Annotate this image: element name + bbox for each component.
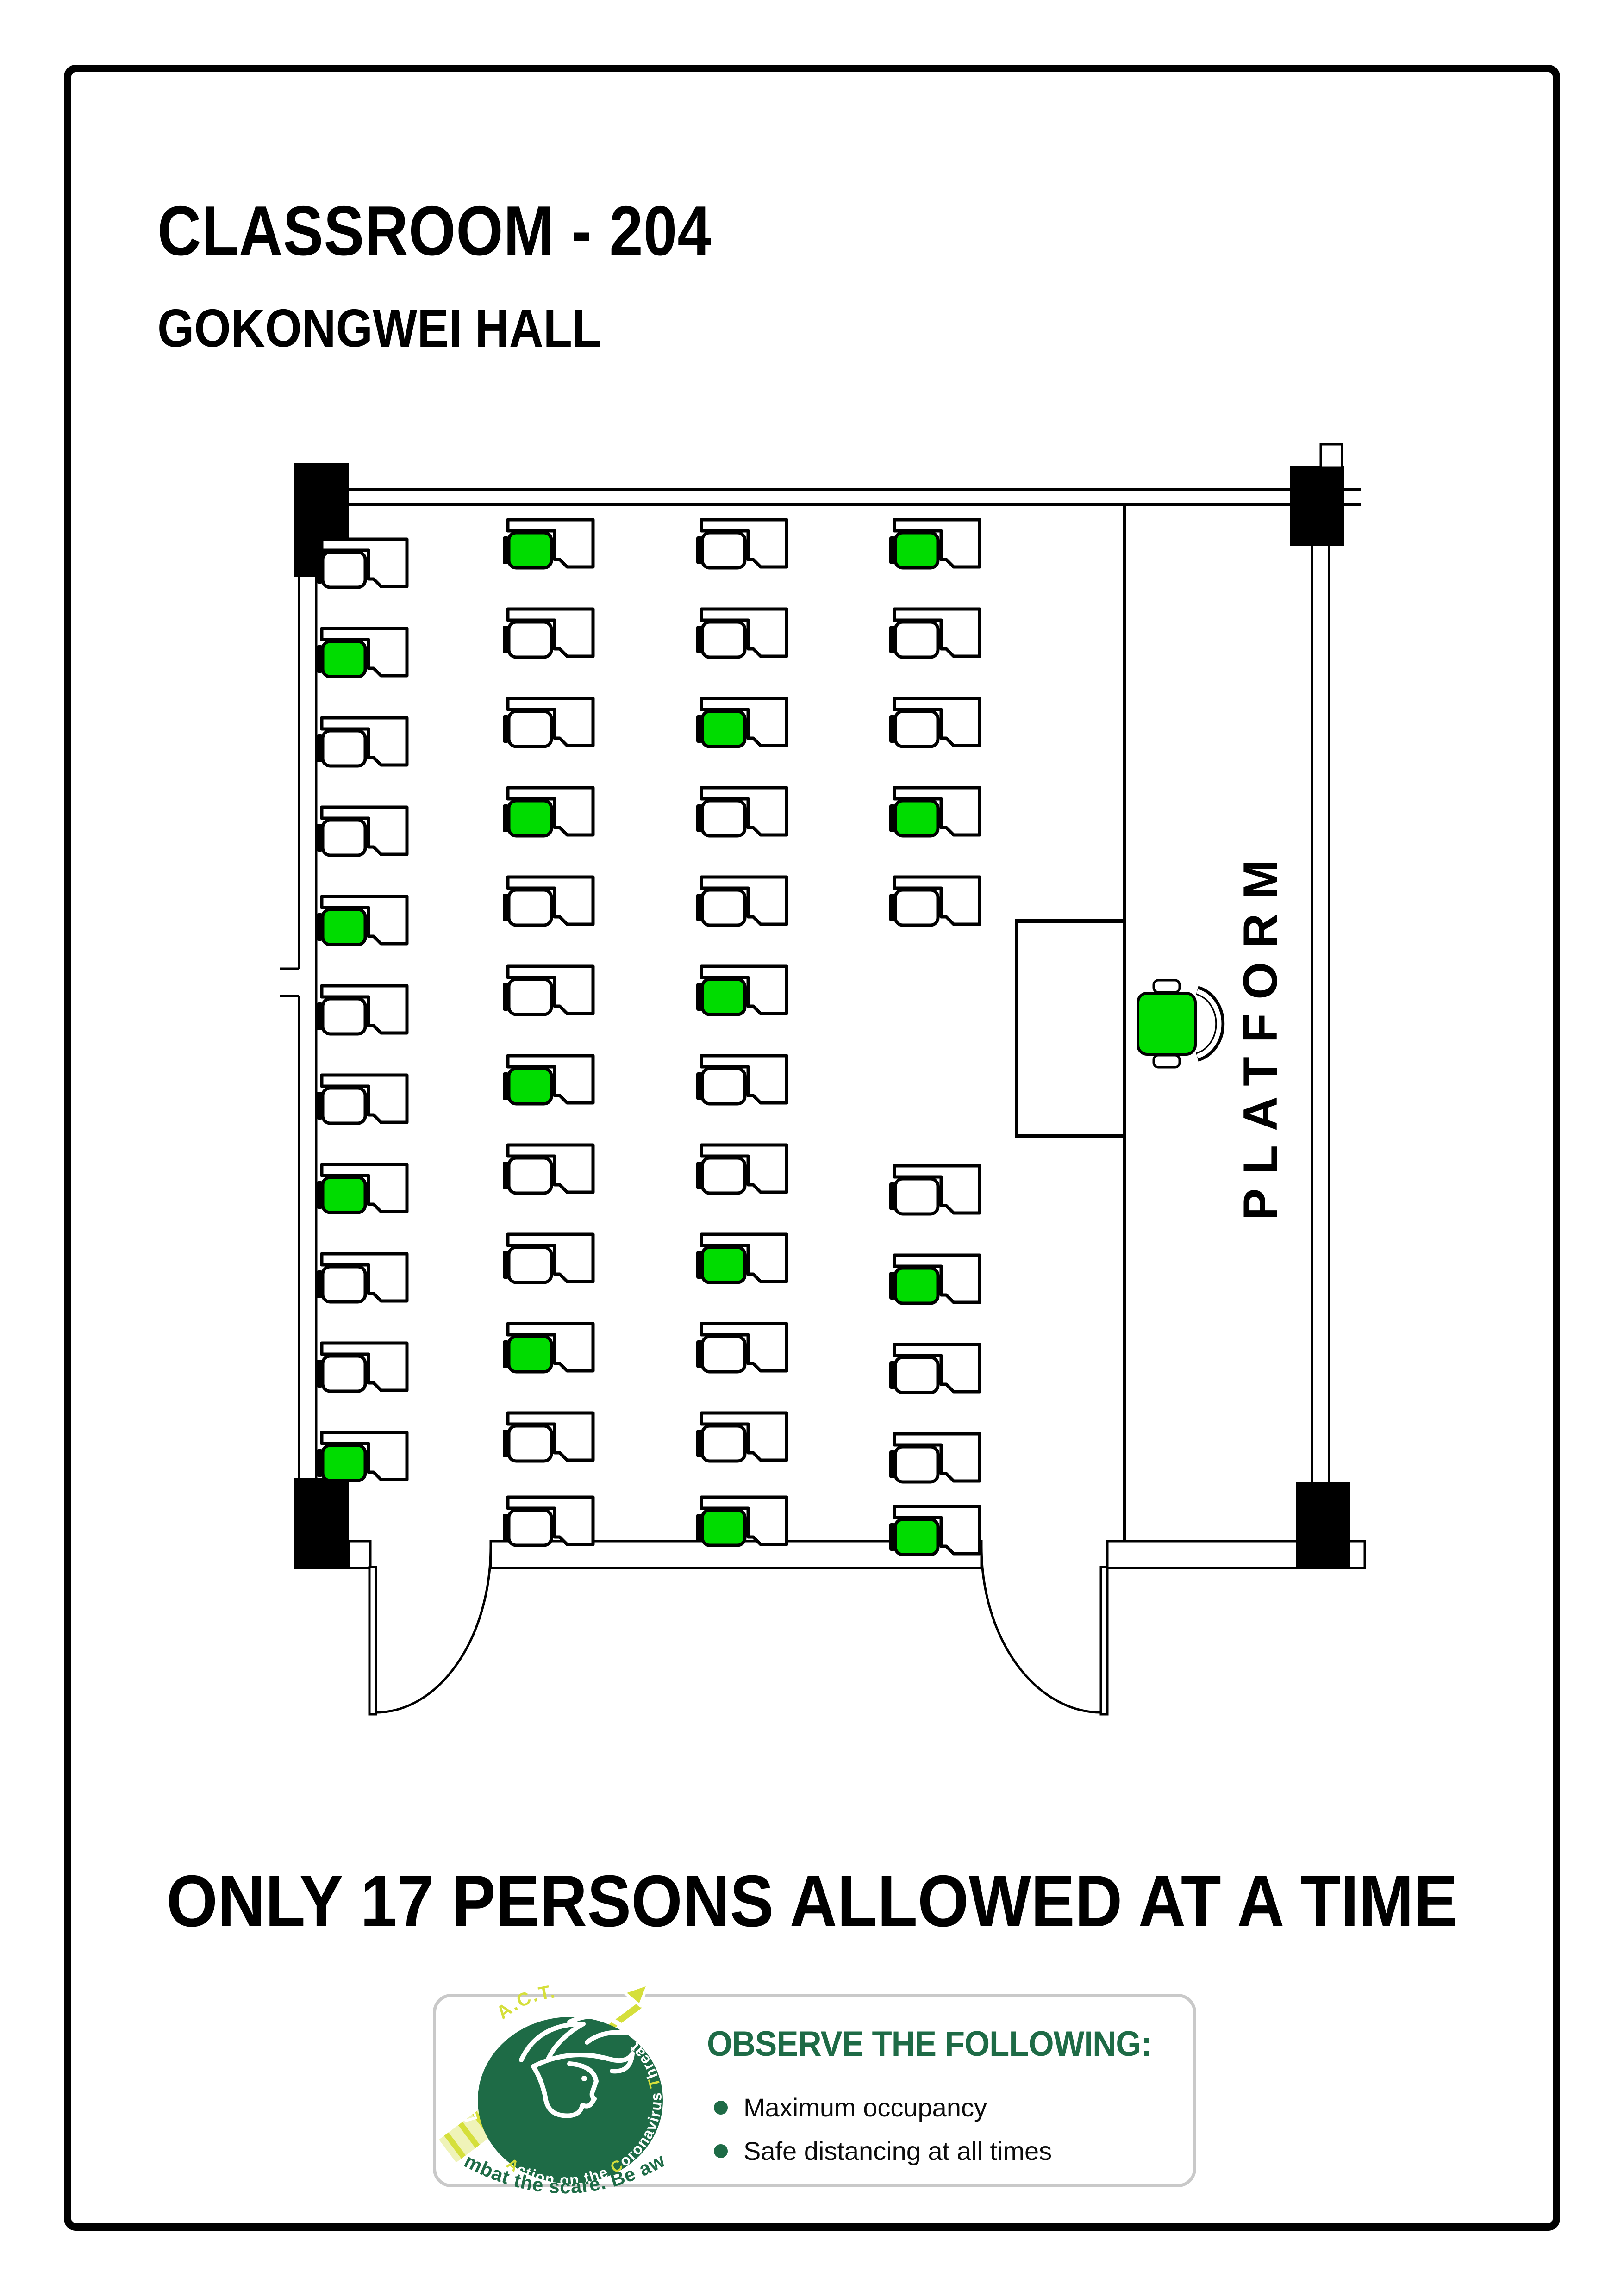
desk-col-a-4-occupied bbox=[503, 788, 593, 836]
desk-col-a-1-occupied bbox=[503, 520, 593, 568]
desk-wall-column-3-empty bbox=[317, 718, 407, 766]
desk-col-a-5-empty bbox=[503, 877, 593, 925]
bullet-item: Safe distancing at all times bbox=[714, 2136, 1052, 2166]
desk-col-a-9-empty bbox=[503, 1234, 593, 1282]
desk-col-c-5-empty bbox=[889, 877, 980, 925]
bullet-item: Maximum occupancy bbox=[714, 2092, 987, 2122]
desk-col-a-7-occupied bbox=[503, 1056, 593, 1104]
desk-wall-column-2-occupied bbox=[317, 628, 407, 677]
left-wall bbox=[280, 575, 316, 1479]
door-left bbox=[369, 1547, 491, 1714]
page-subtitle: GOKONGWEI HALL bbox=[157, 297, 601, 359]
desk-col-b-7-empty bbox=[696, 1056, 787, 1104]
act-badge: Lasallians A.C.T. Action on the Coronavi… bbox=[433, 1994, 1196, 2187]
pillar-bottom-left bbox=[294, 1478, 349, 1569]
desk-col-c-7-occupied bbox=[889, 1255, 980, 1303]
top-wall bbox=[343, 489, 1361, 504]
right-wall bbox=[1312, 546, 1329, 1482]
page-title: CLASSROOM - 204 bbox=[157, 191, 712, 272]
desk-wall-column-8-occupied bbox=[317, 1164, 407, 1213]
desk-wall-column-11-occupied bbox=[317, 1432, 407, 1481]
bullet-dot-icon bbox=[714, 2101, 728, 2115]
lasallians-act-logo: Lasallians A.C.T. Action on the Coronavi… bbox=[431, 1968, 727, 2218]
pillar-bottom-right bbox=[1296, 1482, 1350, 1568]
desk-wall-column-1-empty bbox=[317, 539, 407, 587]
bullet-text: Maximum occupancy bbox=[743, 2092, 987, 2122]
desk-wall-column-10-empty bbox=[317, 1343, 407, 1391]
poster-page: CLASSROOM - 204 GOKONGWEI HALL bbox=[0, 0, 1624, 2296]
pillar-top-right bbox=[1290, 466, 1344, 546]
desk-col-a-2-empty bbox=[503, 609, 593, 657]
desk-wall-column-4-empty bbox=[317, 807, 407, 855]
desk-col-b-11-empty bbox=[696, 1413, 787, 1461]
desk-col-b-9-occupied bbox=[696, 1234, 787, 1282]
desk-col-b-10-empty bbox=[696, 1324, 787, 1372]
desk-wall-column-7-empty bbox=[317, 1075, 407, 1123]
desk-col-a-12-empty bbox=[503, 1497, 593, 1545]
desk-col-b-5-empty bbox=[696, 877, 787, 925]
desk-wall-column-6-empty bbox=[317, 986, 407, 1034]
desk-wall-column-9-empty bbox=[317, 1254, 407, 1302]
desk-col-b-3-occupied bbox=[696, 698, 787, 747]
teacher-chair bbox=[1138, 980, 1220, 1067]
desk-col-a-3-empty bbox=[503, 698, 593, 747]
desk-col-b-4-empty bbox=[696, 788, 787, 836]
desk-col-a-11-empty bbox=[503, 1413, 593, 1461]
desk-col-c-4-occupied bbox=[889, 788, 980, 836]
desk-col-c-6-empty bbox=[889, 1166, 980, 1214]
pillar-top-right-notch bbox=[1321, 444, 1342, 467]
desk-wall-column-5-occupied bbox=[317, 896, 407, 945]
desk-col-c-10-occupied bbox=[889, 1506, 980, 1555]
desk-col-b-12-occupied bbox=[696, 1497, 787, 1545]
bottom-wall bbox=[349, 1541, 1365, 1568]
desk-col-c-2-empty bbox=[889, 609, 980, 657]
desk-col-b-1-empty bbox=[696, 520, 787, 568]
teacher-desk bbox=[1017, 921, 1124, 1136]
desk-col-b-2-empty bbox=[696, 609, 787, 657]
desk-col-a-8-empty bbox=[503, 1145, 593, 1193]
desk-col-c-1-occupied bbox=[889, 520, 980, 568]
platform-label: PLATFORM bbox=[1234, 846, 1287, 1220]
desk-col-a-10-occupied bbox=[503, 1324, 593, 1372]
bullet-dot-icon bbox=[714, 2144, 728, 2158]
desk-col-c-8-empty bbox=[889, 1344, 980, 1393]
desk-col-c-3-empty bbox=[889, 698, 980, 747]
desk-col-b-8-empty bbox=[696, 1145, 787, 1193]
desk-col-b-6-occupied bbox=[696, 966, 787, 1014]
floor-plan: PLATFORM bbox=[259, 430, 1398, 1749]
door-right bbox=[981, 1547, 1107, 1714]
observe-heading: OBSERVE THE FOLLOWING: bbox=[707, 2024, 1151, 2064]
bullet-text: Safe distancing at all times bbox=[743, 2136, 1052, 2166]
desk-col-c-9-empty bbox=[889, 1434, 980, 1482]
desk-col-a-6-empty bbox=[503, 966, 593, 1014]
desks-layer bbox=[317, 520, 980, 1555]
capacity-notice: ONLY 17 PERSONS ALLOWED AT A TIME bbox=[81, 1860, 1543, 1943]
